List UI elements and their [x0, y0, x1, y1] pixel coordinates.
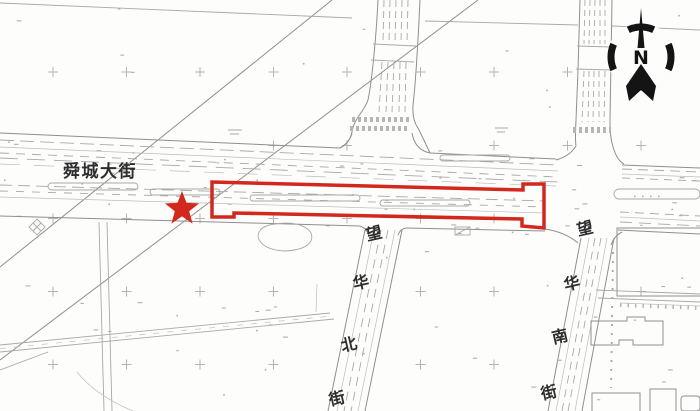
south-road-upper [573, 0, 612, 146]
map-speck [435, 326, 438, 327]
map-speck [658, 196, 660, 198]
map-speck [574, 208, 579, 209]
map-speck [17, 20, 22, 21]
map-speck [634, 196, 636, 198]
map-speck [265, 369, 267, 371]
map-speck [642, 196, 644, 198]
map-speck [131, 72, 135, 73]
survey-cross [195, 360, 205, 370]
label-wanghua-south-char-2: 华 [562, 274, 581, 293]
map-speck [650, 196, 652, 198]
map-speck [274, 306, 277, 307]
site-plan-map: N 舜城大街 望 华 北 街 望 华 南 街 [0, 0, 700, 411]
map-speck [176, 315, 178, 317]
map-speck [594, 317, 598, 318]
survey-cross [269, 360, 279, 370]
map-speck [546, 90, 548, 92]
label-wanghua-north-char-3: 北 [339, 335, 358, 354]
map-speck [640, 225, 642, 226]
map-speck [513, 198, 515, 200]
label-wanghua-north-char-1: 望 [364, 224, 383, 243]
map-speck [386, 257, 388, 259]
label-wanghua-south-char-4: 街 [539, 383, 558, 402]
map-speck [120, 55, 124, 56]
map-speck [94, 329, 98, 330]
map-speck [340, 166, 344, 167]
survey-cross [489, 360, 499, 370]
map-speck [363, 29, 366, 30]
label-shuncheng-avenue: 舜城大街 [63, 164, 137, 181]
survey-cross [416, 67, 426, 77]
survey-cross [489, 67, 499, 77]
map-speck [8, 141, 10, 143]
location-star-icon [165, 191, 199, 224]
map-speck [473, 358, 477, 359]
map-speck [531, 387, 536, 388]
map-speck [505, 50, 508, 51]
survey-grid [48, 67, 646, 370]
map-speck [634, 320, 636, 321]
label-wanghua-north-char-4: 街 [327, 389, 346, 408]
map-speck [255, 311, 259, 312]
building-footprints [591, 228, 700, 411]
map-speck [451, 224, 456, 225]
survey-cross [48, 360, 58, 370]
label-wanghua-south-char-1: 望 [575, 219, 594, 238]
survey-cross [416, 287, 426, 297]
map-speck [678, 15, 680, 17]
map-speck [204, 187, 207, 188]
map-speck [360, 163, 363, 164]
map-speck [80, 303, 84, 304]
map-speck [680, 177, 685, 178]
map-speck [572, 189, 576, 190]
map-speck [224, 159, 226, 161]
survey-cross [563, 67, 573, 77]
map-speck [661, 286, 665, 287]
map-speck [582, 203, 587, 204]
survey-cross [269, 67, 279, 77]
survey-cross [122, 287, 132, 297]
survey-cross [48, 287, 58, 297]
survey-cross [48, 67, 58, 77]
map-speck [256, 180, 258, 182]
survey-cross [122, 214, 132, 224]
field-lanes [0, 222, 334, 411]
map-speck [547, 285, 549, 287]
map-speck [687, 287, 691, 288]
map-speck [439, 177, 441, 178]
north-boundary-line [0, 3, 700, 30]
map-speck [303, 63, 305, 65]
survey-cross [122, 67, 132, 77]
map-speck [14, 144, 18, 145]
north-road-upper [340, 0, 430, 153]
map-speck [668, 369, 673, 370]
map-speck [671, 209, 673, 211]
map-speck [217, 162, 219, 163]
pond-outline [258, 223, 312, 251]
label-wanghua-south-char-3: 南 [550, 327, 569, 346]
map-speck [4, 179, 6, 181]
map-speck [672, 202, 677, 203]
survey-cross [195, 287, 205, 297]
survey-cross [563, 141, 573, 151]
map-speck [565, 225, 569, 226]
survey-cross [489, 141, 499, 151]
map-speck [222, 308, 226, 309]
survey-cross [122, 360, 132, 370]
survey-cross [342, 67, 352, 77]
label-wanghua-north-char-2: 华 [351, 273, 370, 292]
map-speck [662, 381, 666, 382]
survey-cross [269, 287, 279, 297]
map-speck [549, 106, 551, 108]
map-speck [478, 178, 481, 179]
map-speck [681, 277, 683, 279]
map-speck [512, 232, 514, 234]
survey-cross [489, 287, 499, 297]
map-speck [266, 310, 271, 311]
map-speck [223, 394, 225, 396]
survey-cross [195, 67, 205, 77]
map-speck [256, 330, 258, 332]
compass-letter: N [633, 47, 649, 69]
map-speck [138, 302, 143, 303]
map-speck [176, 350, 179, 351]
map-speck [438, 150, 442, 151]
map-speck [26, 285, 31, 286]
compass-rose-icon: N [611, 8, 671, 101]
north-street-lower [316, 230, 402, 411]
map-speck [525, 234, 529, 235]
map-speck [476, 228, 480, 229]
map-speck [283, 337, 288, 338]
map-speck [108, 203, 110, 205]
south-street-lower [548, 238, 614, 411]
map-speck [577, 165, 582, 166]
map-speck [425, 251, 429, 252]
map-speck [597, 399, 600, 400]
survey-cross [416, 360, 426, 370]
map-speck [385, 209, 388, 210]
survey-cross [636, 141, 646, 151]
